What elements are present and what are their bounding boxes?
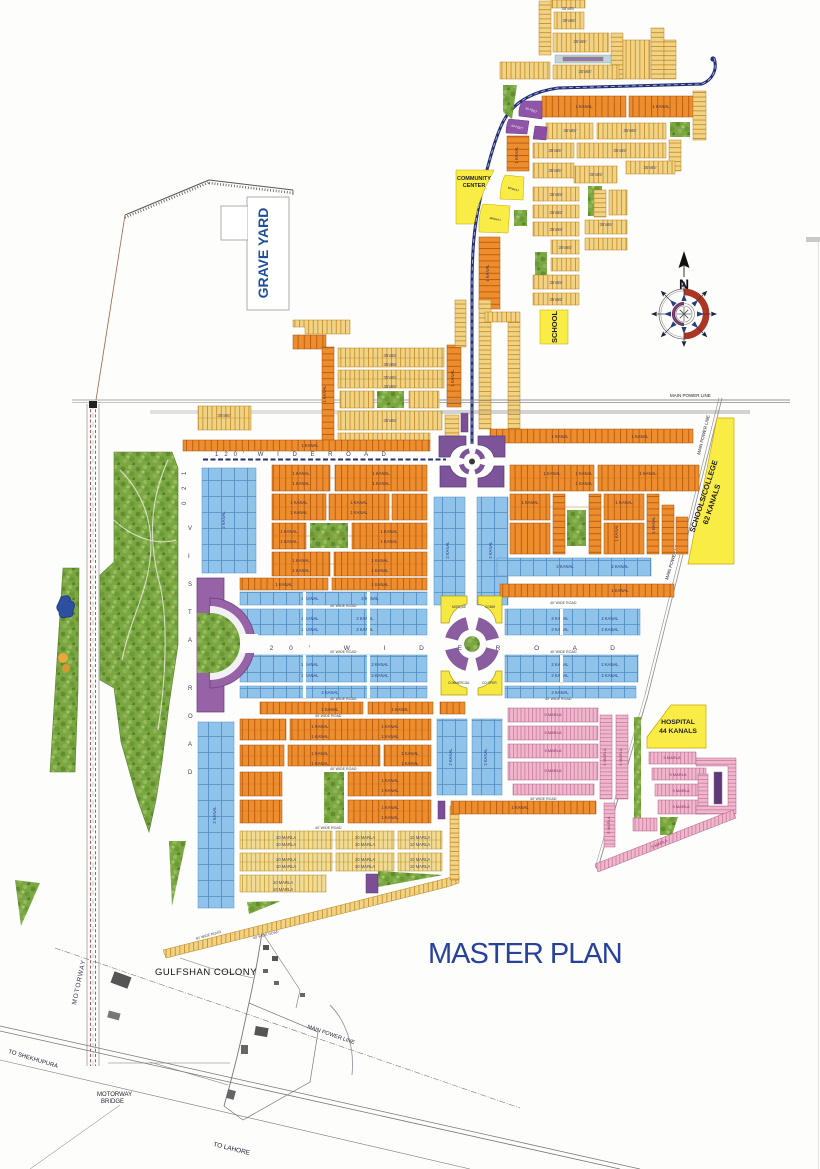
svg-text:120′ W I D E R O A D: 120′ W I D E R O A D [215, 452, 392, 458]
svg-text:1 KANAL: 1 KANAL [615, 500, 633, 505]
svg-text:MOSQUE: MOSQUE [452, 605, 466, 609]
svg-text:1 KANAL: 1 KANAL [381, 778, 399, 783]
svg-text:5 MARLA: 5 MARLA [663, 755, 680, 760]
svg-text:2 KANAL: 2 KANAL [601, 616, 619, 621]
svg-text:40′ WIDE ROAD: 40′ WIDE ROAD [330, 697, 357, 701]
svg-text:2 KANAL: 2 KANAL [356, 627, 374, 632]
svg-text:1 KANAL: 1 KANAL [514, 146, 519, 164]
svg-text:COMMUNITY: COMMUNITY [457, 176, 491, 182]
svg-text:2 KANAL: 2 KANAL [212, 806, 217, 824]
svg-text:1 KANAL: 1 KANAL [611, 588, 629, 593]
svg-text:2 KANAL: 2 KANAL [448, 748, 453, 766]
svg-text:5 MARLA: 5 MARLA [669, 772, 686, 777]
svg-text:10 MARLA: 10 MARLA [355, 842, 375, 847]
svg-text:10 MARLA: 10 MARLA [273, 887, 293, 892]
svg-text:1 KANAL: 1 KANAL [381, 724, 399, 729]
svg-text:1 KANAL: 1 KANAL [311, 761, 329, 766]
svg-text:1 KANAL: 1 KANAL [371, 558, 389, 563]
svg-text:35′x65′: 35′x65′ [563, 18, 576, 23]
svg-text:35′x65′: 35′x65′ [550, 192, 563, 197]
svg-text:BRIDGE: BRIDGE [101, 1099, 124, 1105]
svg-text:5 MARLA: 5 MARLA [602, 748, 607, 765]
svg-text:1 KANAL: 1 KANAL [350, 500, 368, 505]
svg-text:1 KANAL: 1 KANAL [380, 529, 398, 534]
svg-text:35′x65′: 35′x65′ [550, 227, 563, 232]
svg-text:CO OPER: CO OPER [482, 681, 497, 685]
svg-text:1 KANAL: 1 KANAL [292, 481, 310, 486]
svg-text:V: V [188, 526, 192, 532]
svg-text:35′x65′: 35′x65′ [384, 362, 397, 367]
svg-text:10 MARLA: 10 MARLA [355, 835, 375, 840]
svg-text:5 MARLA: 5 MARLA [544, 748, 561, 753]
svg-text:1 KANAL: 1 KANAL [614, 524, 619, 542]
svg-text:5 MARLA: 5 MARLA [606, 816, 611, 833]
svg-text:10 MARLA: 10 MARLA [355, 857, 375, 862]
svg-text:35′x65′: 35′x65′ [564, 128, 577, 133]
svg-text:40′ WIDE ROAD: 40′ WIDE ROAD [545, 697, 572, 701]
svg-text:1 KANAL: 1 KANAL [292, 558, 310, 563]
svg-text:1 KANAL: 1 KANAL [575, 471, 593, 476]
svg-text:1 KANAL: 1 KANAL [371, 568, 389, 573]
svg-text:2 KANAL: 2 KANAL [611, 564, 629, 569]
svg-text:2 KANAL: 2 KANAL [601, 662, 619, 667]
svg-text:35′x65′: 35′x65′ [644, 165, 657, 170]
svg-text:1 KANAL: 1 KANAL [381, 788, 399, 793]
svg-text:HOSPITAL: HOSPITAL [661, 719, 695, 726]
svg-text:S: S [188, 582, 192, 588]
svg-text:1 KANAL: 1 KANAL [652, 104, 670, 109]
svg-text:10 MARLA: 10 MARLA [355, 864, 375, 869]
svg-text:1 KANAL: 1 KANAL [381, 805, 399, 810]
svg-text:1 KANAL: 1 KANAL [290, 510, 308, 515]
svg-text:1 KANAL: 1 KANAL [485, 264, 490, 282]
svg-text:35′x65′: 35′x65′ [562, 6, 575, 11]
svg-text:2 KANAL: 2 KANAL [488, 541, 493, 559]
svg-text:5 MARLA: 5 MARLA [544, 768, 561, 773]
svg-text:5 MARLA: 5 MARLA [672, 788, 689, 793]
svg-text:1 KANAL: 1 KANAL [551, 434, 569, 439]
svg-text:GULFSHAN COLONY: GULFSHAN COLONY [155, 967, 257, 978]
svg-text:1 KANAL: 1 KANAL [575, 481, 593, 486]
svg-text:5 MARLA: 5 MARLA [544, 712, 561, 717]
svg-text:1 KANAL: 1 KANAL [280, 529, 298, 534]
svg-text:1 KANAL: 1 KANAL [381, 815, 399, 820]
svg-text:40′ WIDE ROAD: 40′ WIDE ROAD [315, 714, 342, 718]
svg-text:10 MARLA: 10 MARLA [410, 842, 430, 847]
svg-text:5 MARLA: 5 MARLA [618, 748, 623, 765]
svg-text:5 MARLA: 5 MARLA [672, 804, 689, 809]
svg-text:1 KANAL: 1 KANAL [290, 500, 308, 505]
svg-text:5 MARLA: 5 MARLA [544, 730, 561, 735]
svg-text:1 KANAL: 1 KANAL [311, 734, 329, 739]
svg-text:R: R [188, 686, 193, 692]
svg-text:1 KANAL: 1 KANAL [371, 582, 389, 587]
svg-text:35′x65′: 35′x65′ [550, 210, 563, 215]
svg-text:35′x65′: 35′x65′ [624, 128, 637, 133]
svg-text:1 KANAL: 1 KANAL [631, 434, 649, 439]
svg-text:40′ WIDE ROAD: 40′ WIDE ROAD [330, 650, 357, 654]
svg-text:1 KANAL: 1 KANAL [372, 471, 390, 476]
svg-text:MOTORWAY: MOTORWAY [97, 1092, 132, 1098]
svg-text:35′x65′: 35′x65′ [218, 413, 231, 418]
svg-text:D: D [188, 770, 193, 776]
svg-text:1 KANAL: 1 KANAL [292, 568, 310, 573]
svg-text:1 KANAL: 1 KANAL [311, 751, 329, 756]
svg-text:1 KANAL: 1 KANAL [401, 761, 419, 766]
svg-text:1 KANAL: 1 KANAL [372, 481, 390, 486]
svg-text:1 KANAL: 1 KANAL [639, 471, 657, 476]
svg-text:40′ WIDE ROAD: 40′ WIDE ROAD [330, 604, 357, 608]
svg-text:35′x65′: 35′x65′ [550, 297, 563, 302]
svg-text:1 KANAL: 1 KANAL [391, 707, 409, 712]
svg-text:A: A [188, 638, 192, 644]
svg-text:1 KANAL: 1 KANAL [651, 516, 656, 534]
svg-text:35′x65′: 35′x65′ [600, 222, 613, 227]
svg-text:2 KANAL: 2 KANAL [445, 541, 450, 559]
svg-text:2 KANAL: 2 KANAL [601, 673, 619, 678]
svg-text:35′x65′: 35′x65′ [384, 353, 397, 358]
svg-text:1 KANAL: 1 KANAL [301, 443, 319, 448]
svg-text:1 KANAL: 1 KANAL [401, 751, 419, 756]
svg-text:1 KANAL: 1 KANAL [575, 104, 593, 109]
svg-text:COMMERCIAL: COMMERCIAL [448, 681, 470, 685]
svg-text:2 KANAL: 2 KANAL [356, 616, 374, 621]
svg-text:COMM: COMM [485, 605, 495, 609]
svg-text:35′x65′: 35′x65′ [549, 148, 562, 153]
svg-text:2 KANAL: 2 KANAL [483, 748, 488, 766]
svg-text:2 KANAL: 2 KANAL [371, 673, 389, 678]
svg-text:40′ WIDE ROAD: 40′ WIDE ROAD [550, 601, 577, 605]
svg-text:40′ WIDE ROAD: 40′ WIDE ROAD [315, 826, 342, 830]
svg-text:T: T [188, 610, 192, 616]
svg-text:40′ WIDE ROAD: 40′ WIDE ROAD [550, 650, 577, 654]
svg-text:O: O [188, 714, 193, 720]
svg-text:35′x65′: 35′x65′ [384, 384, 397, 389]
svg-text:35′x65′: 35′x65′ [574, 39, 587, 44]
svg-text:MAIN POWER LINE: MAIN POWER LINE [670, 393, 711, 398]
svg-text:A: A [188, 742, 192, 748]
svg-text:10 MARLA: 10 MARLA [276, 857, 296, 862]
svg-text:2 KANAL: 2 KANAL [601, 627, 619, 632]
svg-text:2 KANAL: 2 KANAL [221, 511, 226, 529]
svg-text:1 KANAL: 1 KANAL [275, 582, 293, 587]
svg-text:10 MARLA: 10 MARLA [410, 835, 430, 840]
svg-text:10 MARLA: 10 MARLA [410, 857, 430, 862]
svg-text:40′ WIDE ROAD: 40′ WIDE ROAD [530, 797, 557, 801]
svg-text:SCHOOL: SCHOOL [550, 311, 559, 344]
svg-text:2 KANAL: 2 KANAL [551, 690, 569, 695]
svg-text:10 MARLA: 10 MARLA [276, 835, 296, 840]
svg-text:10 MARLA: 10 MARLA [276, 864, 296, 869]
svg-text:10 MARLA: 10 MARLA [276, 842, 296, 847]
svg-text:1 KANAL: 1 KANAL [511, 805, 529, 810]
svg-text:1 KANAL: 1 KANAL [322, 385, 327, 403]
svg-text:1 KANAL: 1 KANAL [450, 369, 455, 387]
svg-text:10 MARLA: 10 MARLA [273, 880, 293, 885]
svg-text:2 KANAL: 2 KANAL [556, 564, 574, 569]
svg-text:1 KANAL: 1 KANAL [280, 539, 298, 544]
svg-text:1 KANAL: 1 KANAL [350, 510, 368, 515]
svg-text:GRAVE YARD: GRAVE YARD [255, 208, 271, 299]
svg-text:35′x65′: 35′x65′ [384, 418, 397, 423]
svg-text:1 KANAL: 1 KANAL [381, 734, 399, 739]
svg-text:40′ WIDE ROAD: 40′ WIDE ROAD [330, 767, 357, 771]
svg-text:1 KANAL: 1 KANAL [321, 707, 339, 712]
svg-text:1 KANAL: 1 KANAL [292, 471, 310, 476]
svg-text:35′x65′: 35′x65′ [550, 280, 563, 285]
svg-text:10 MARLA: 10 MARLA [410, 864, 430, 869]
svg-text:35′x65′: 35′x65′ [579, 69, 592, 74]
svg-text:35′x65′: 35′x65′ [614, 148, 627, 153]
svg-text:1 KANAL: 1 KANAL [521, 500, 539, 505]
svg-text:CENTER: CENTER [463, 183, 486, 189]
svg-text:2 KANAL: 2 KANAL [371, 662, 389, 667]
svg-text:1 KANAL: 1 KANAL [311, 724, 329, 729]
svg-text:35′x65′: 35′x65′ [559, 245, 572, 250]
svg-text:1 KANAL: 1 KANAL [543, 471, 561, 476]
svg-text:MASTER PLAN: MASTER PLAN [428, 938, 622, 970]
svg-text:35′x65′: 35′x65′ [590, 172, 603, 177]
svg-text:1 KANAL: 1 KANAL [380, 539, 398, 544]
svg-text:2 KANAL: 2 KANAL [321, 690, 339, 695]
svg-text:44 KANALS: 44 KANALS [659, 728, 697, 735]
svg-text:2 KANAL: 2 KANAL [361, 596, 379, 601]
svg-text:35′x65′: 35′x65′ [549, 168, 562, 173]
